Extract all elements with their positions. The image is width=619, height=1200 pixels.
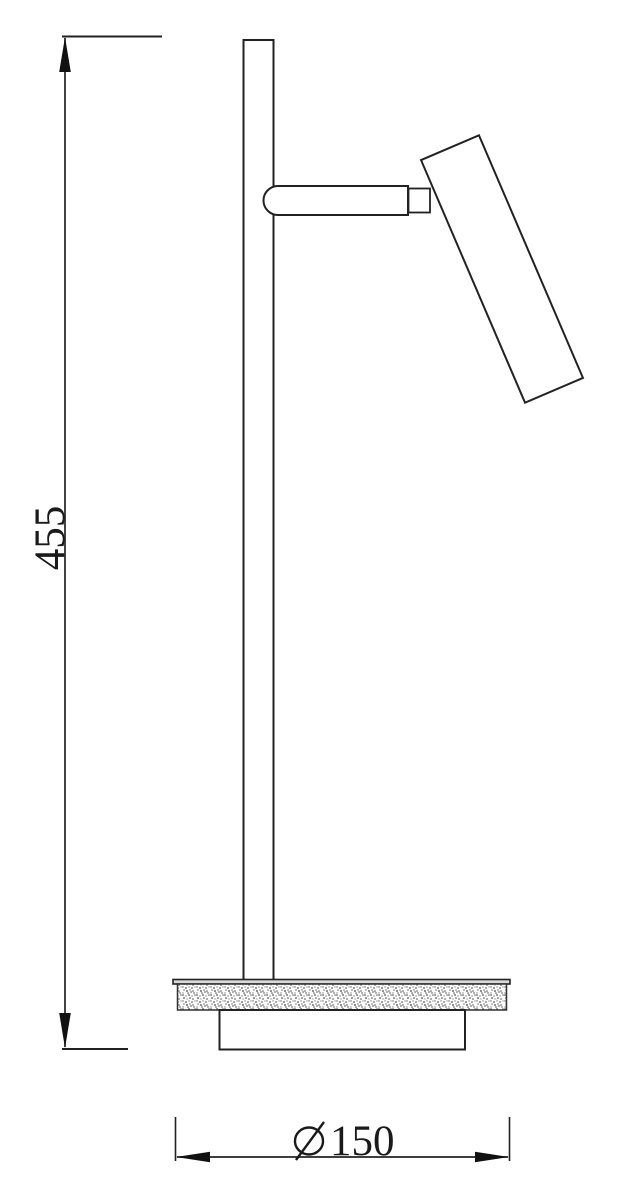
lamp-body [244,40,583,980]
lamp-head [421,135,583,402]
diameter-symbol-icon [295,1122,324,1160]
lamp-technical-drawing: 455 150 [0,0,619,1200]
diameter-dimension: 150 [176,1117,510,1165]
arrow-down-icon [59,1013,71,1048]
lamp-head-connector [409,189,431,213]
arrow-up-icon [59,37,71,72]
lamp-arm [264,186,409,215]
lamp-pole [244,40,274,980]
technical-drawing-canvas: 455 150 [0,0,619,1200]
arrow-left-icon [176,1152,210,1162]
height-dimension: 455 [27,37,162,1050]
base-disc-textured [178,984,507,1010]
lamp-base [173,980,510,1050]
arrow-right-icon [475,1152,509,1162]
diameter-dimension-value: 150 [330,1118,395,1165]
height-dimension-value: 455 [27,506,74,571]
base-underside [220,1010,466,1050]
